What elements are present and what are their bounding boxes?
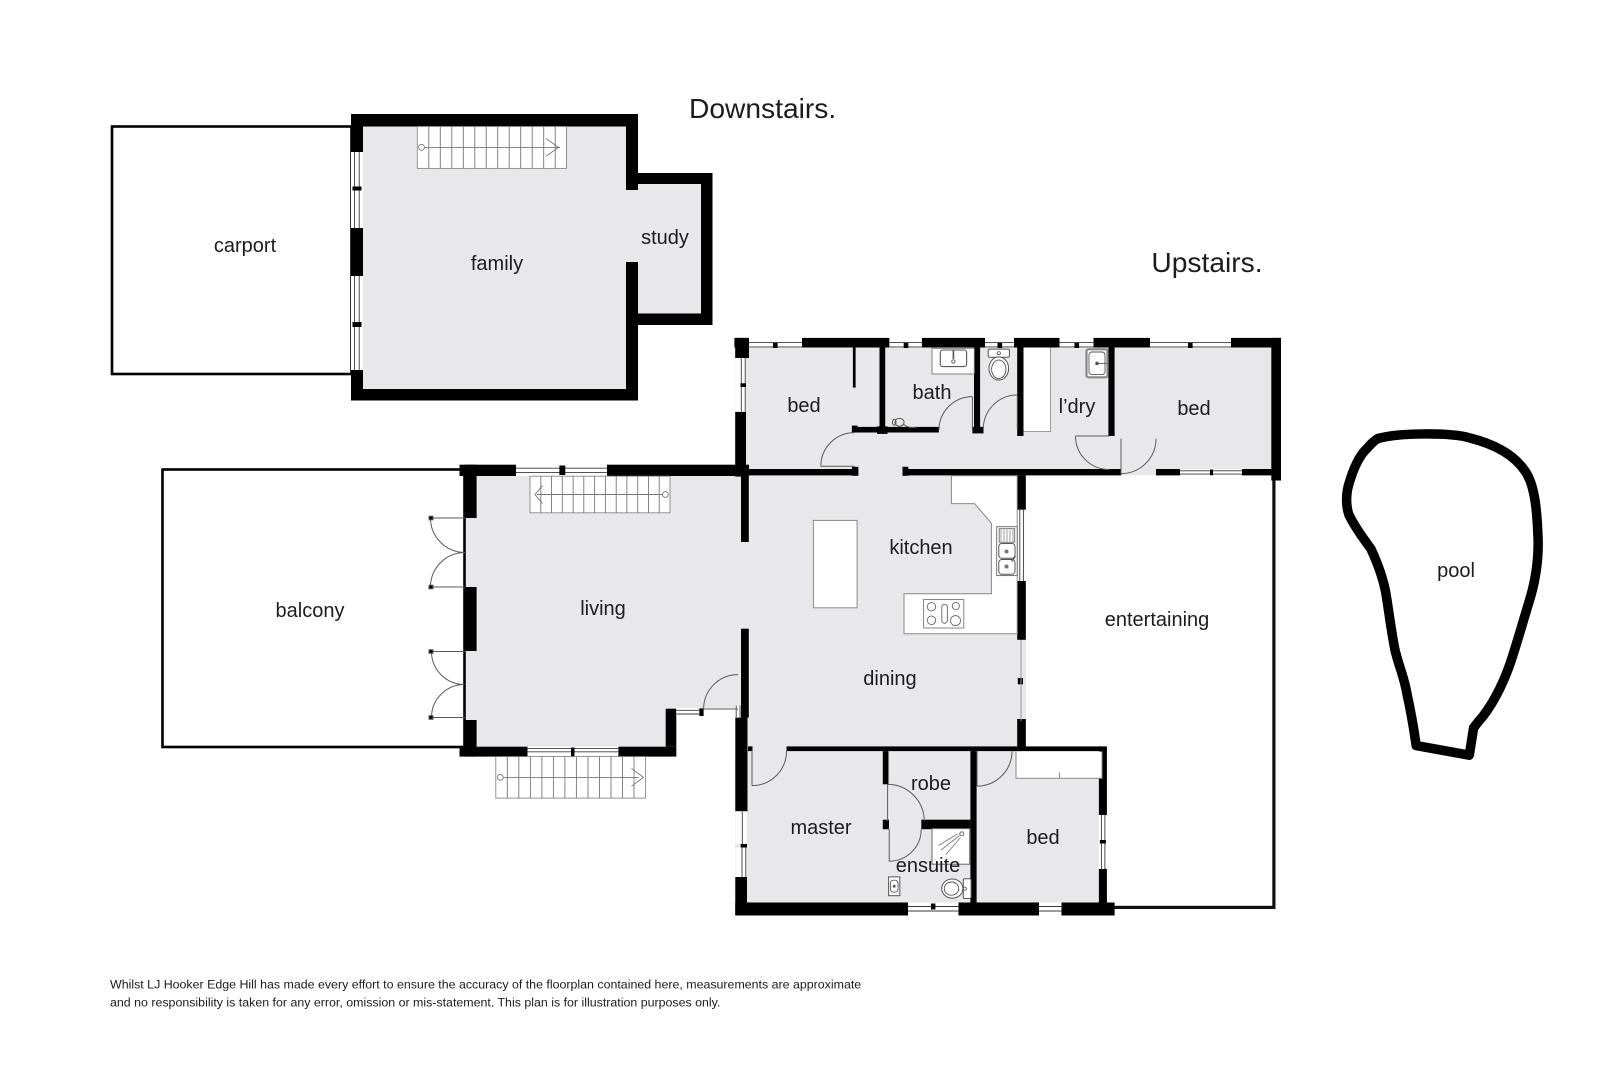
svg-text:Whilst LJ Hooker Edge Hill has: Whilst LJ Hooker Edge Hill has made ever…: [110, 978, 861, 992]
svg-text:bed: bed: [787, 395, 820, 417]
svg-text:master: master: [790, 817, 851, 839]
svg-text:family: family: [471, 253, 523, 275]
svg-text:bath: bath: [913, 382, 952, 404]
svg-text:Downstairs.: Downstairs.: [689, 92, 836, 124]
svg-text:bed: bed: [1026, 827, 1059, 849]
svg-text:l’dry: l’dry: [1059, 396, 1096, 418]
svg-text:bed: bed: [1177, 398, 1210, 420]
svg-text:and no responsibility is taken: and no responsibility is taken for any e…: [110, 996, 720, 1010]
svg-text:living: living: [580, 598, 626, 620]
svg-text:dining: dining: [863, 668, 916, 690]
svg-text:balcony: balcony: [276, 600, 345, 622]
svg-text:study: study: [641, 227, 689, 249]
svg-text:kitchen: kitchen: [889, 537, 952, 559]
svg-text:carport: carport: [214, 235, 277, 257]
svg-text:Upstairs.: Upstairs.: [1151, 246, 1262, 278]
svg-text:entertaining: entertaining: [1105, 609, 1210, 631]
svg-text:robe: robe: [911, 773, 951, 795]
svg-text:pool: pool: [1437, 560, 1475, 582]
svg-text:ensuite: ensuite: [896, 855, 961, 877]
